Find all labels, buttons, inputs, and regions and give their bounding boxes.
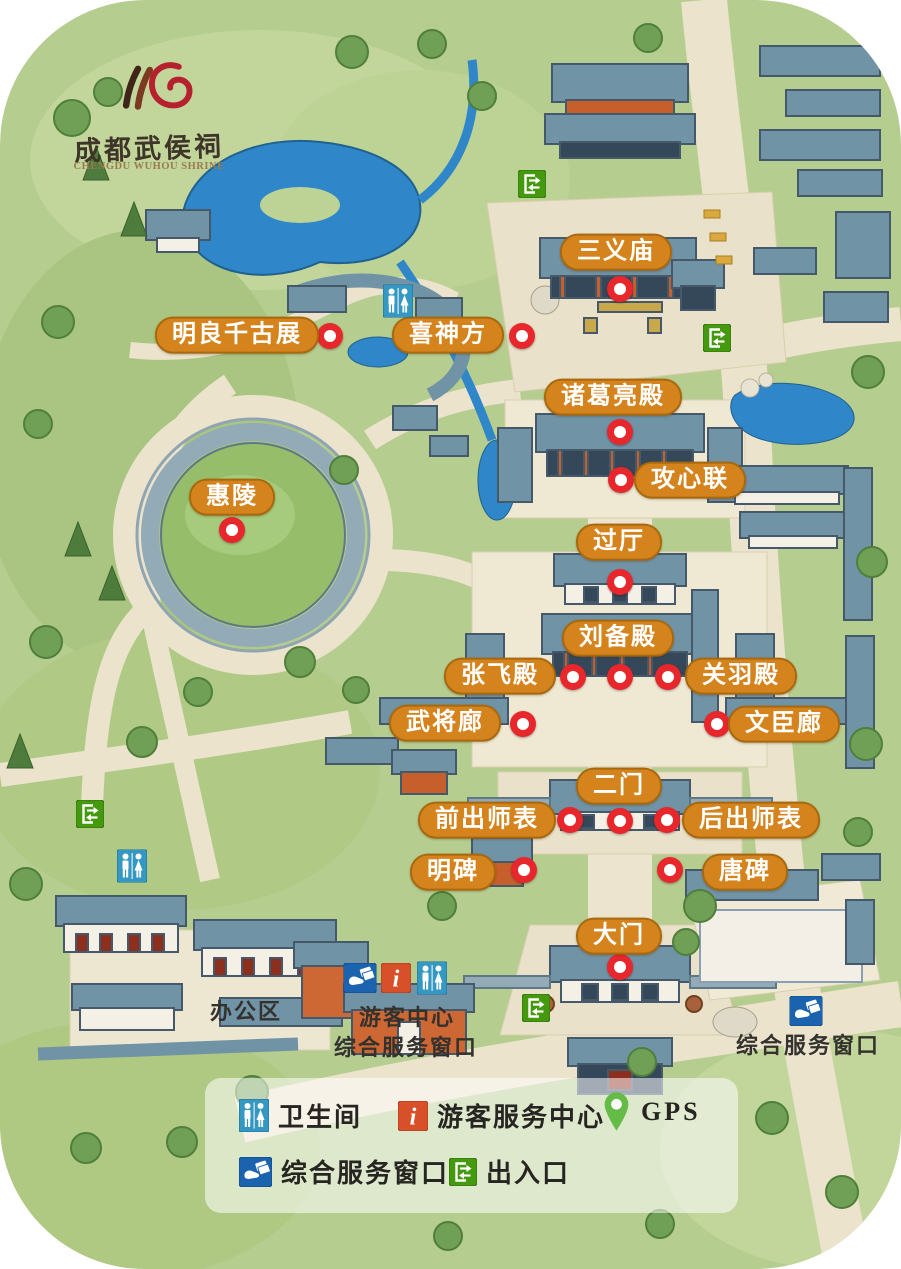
poi-pill: 三义庙 [560,234,672,271]
poi-pill: 刘备殿 [562,620,674,657]
exit-icon [522,994,550,1022]
poi-pill: 关羽殿 [685,658,797,695]
poi-pill: 大门 [576,918,662,955]
legend-item-entrance-exit: 出入口 [449,1153,570,1190]
poi-pill: 唐碑 [702,854,788,891]
legend-item-label: 游客服务中心 [437,1097,605,1134]
poi-pill: 二门 [576,768,662,805]
poi-marker [557,807,583,833]
poi-pill: 文臣廊 [728,706,840,743]
poi-marker [560,664,586,690]
service-icon [790,996,823,1026]
legend-item-label: 综合服务窗口 [281,1153,449,1190]
area-label: 综合服务窗口 [736,1028,880,1060]
poi-pill: 明良千古展 [155,317,319,354]
poi-marker [608,467,634,493]
poi-marker [607,276,633,302]
poi-marker [607,569,633,595]
exit-icon [518,170,546,198]
poi-marker [654,807,680,833]
poi-pill: 明碑 [410,854,496,891]
legend-item-service-window: 综合服务窗口 [239,1153,449,1190]
poi-marker [317,323,343,349]
poi-marker [657,857,683,883]
poi-pill: 前出师表 [418,802,556,839]
legend-item-label: 卫生间 [278,1097,362,1134]
poi-marker [509,323,535,349]
toilet-icon [383,285,413,318]
svg-text:i: i [410,1104,417,1130]
wuhou-shrine-map-page: 成都武侯祠 CHENGDU WUHOU SHRINE 三义庙明良千古展喜神方诸葛… [0,0,901,1269]
poi-pill: 后出师表 [682,802,820,839]
svg-text:i: i [393,967,400,993]
poi-marker [607,664,633,690]
info-icon: i [398,1101,428,1131]
poi-pill: 攻心联 [634,462,746,499]
poi-marker [607,954,633,980]
poi-marker [607,419,633,445]
gps-pin-icon [601,1091,632,1133]
legend-panel: 卫生间 i 游客服务中心 GPS 综合服务窗口 出入口 [205,1078,738,1213]
toilet-icon [239,1099,269,1132]
exit-icon [449,1158,477,1186]
poi-pill: 张飞殿 [444,658,556,695]
poi-marker [511,857,537,883]
legend-item-gps: GPS [601,1091,701,1133]
area-label: 综合服务窗口 [334,1030,478,1062]
legend-item-label: GPS [641,1097,701,1127]
service-window-icon [239,1157,272,1187]
legend-item-toilet: 卫生间 [239,1097,362,1134]
poi-marker [219,517,245,543]
service-icon [344,963,377,993]
poi-pill: 过厅 [576,524,662,561]
info-icon: i [381,963,411,993]
poi-pill: 武将廊 [389,705,501,742]
exit-icon [76,800,104,828]
poi-pill: 惠陵 [189,479,275,516]
poi-marker [704,711,730,737]
poi-marker [655,664,681,690]
area-label: 办公区 [210,994,282,1026]
exit-icon [703,324,731,352]
poi-pill: 诸葛亮殿 [544,379,682,416]
legend-item-visitor-center: i 游客服务中心 [398,1097,605,1134]
toilet-icon [117,850,147,883]
legend-item-label: 出入口 [486,1153,570,1190]
area-label: 游客中心 [359,1000,455,1032]
poi-pill: 喜神方 [392,317,504,354]
poi-marker [607,808,633,834]
toilet-icon [417,962,447,995]
poi-marker [510,711,536,737]
